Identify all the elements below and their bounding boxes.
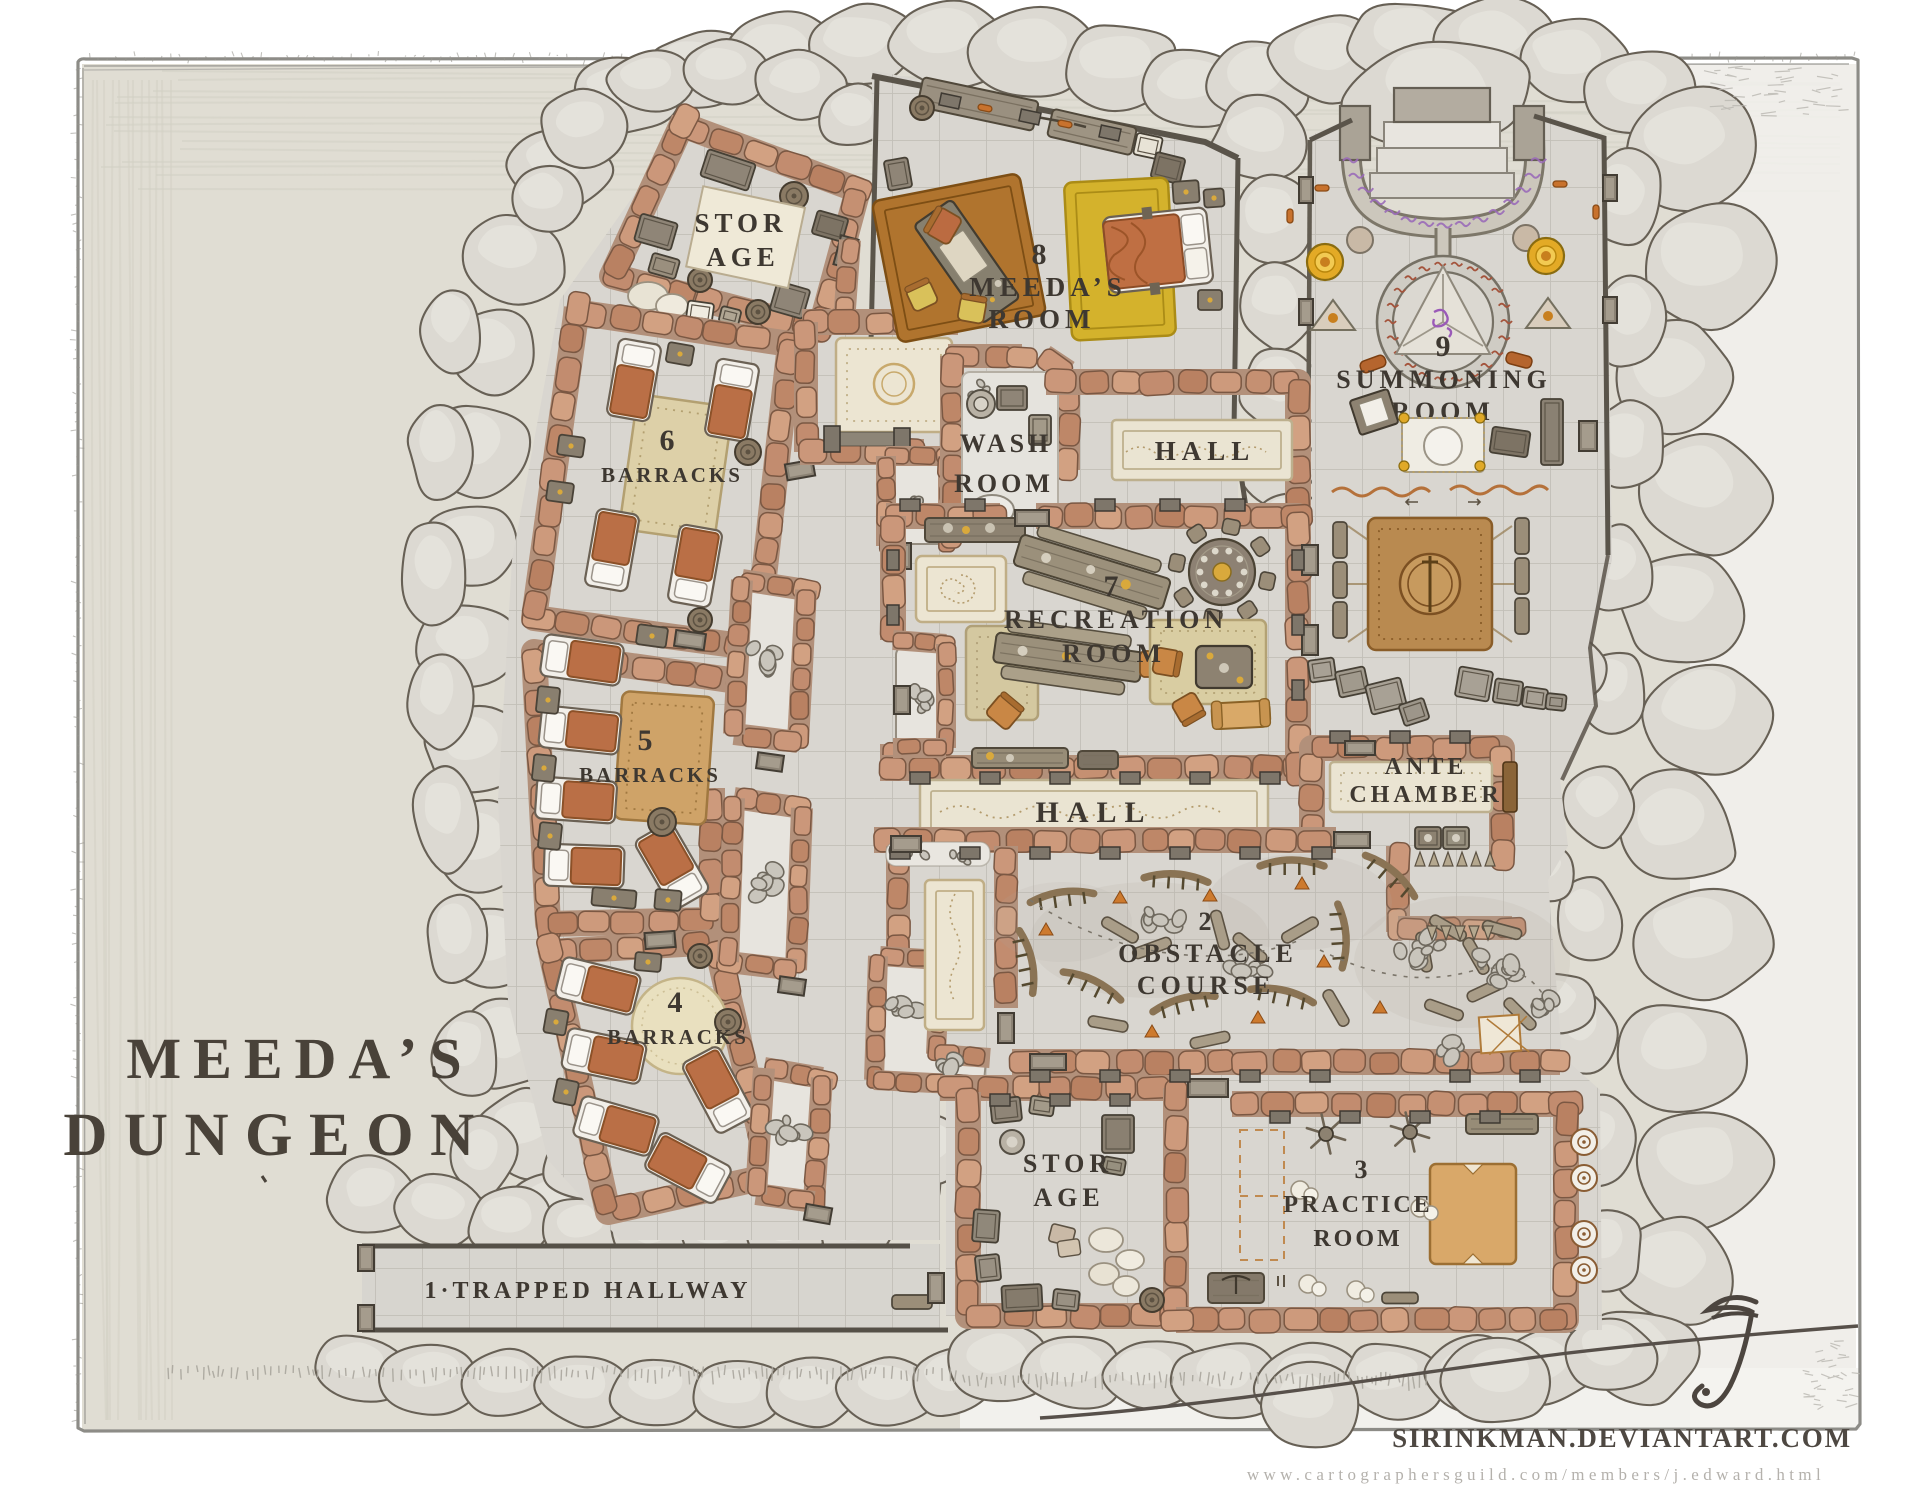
svg-text:HALL: HALL <box>1035 796 1152 829</box>
svg-text:2: 2 <box>1199 907 1214 936</box>
svg-text:CHAMBER: CHAMBER <box>1349 782 1502 808</box>
svg-text:COURSE: COURSE <box>1137 971 1275 1000</box>
svg-text:7: 7 <box>1104 570 1121 603</box>
svg-text:3: 3 <box>1355 1155 1370 1184</box>
svg-text:HALL: HALL <box>1155 436 1256 466</box>
svg-text:SIRINKMAN.DEVIANTART.COM: SIRINKMAN.DEVIANTART.COM <box>1392 1423 1852 1453</box>
svg-text:STOR: STOR <box>1023 1149 1113 1178</box>
svg-text:MEEDA’S: MEEDA’S <box>969 272 1127 302</box>
svg-text:SUMMONING: SUMMONING <box>1336 365 1551 394</box>
svg-text:STOR: STOR <box>694 208 787 238</box>
svg-text:AGE: AGE <box>1033 1183 1104 1212</box>
svg-text:PRACTICE: PRACTICE <box>1283 1192 1432 1218</box>
svg-text:8: 8 <box>1032 238 1049 271</box>
svg-text:BARRACKS: BARRACKS <box>601 463 743 487</box>
svg-text:BARRACKS: BARRACKS <box>579 763 721 787</box>
svg-text:BARRACKS: BARRACKS <box>607 1025 749 1049</box>
svg-text:www.cartographersguild.com/mem: www.cartographersguild.com/members/j.edw… <box>1247 1465 1825 1484</box>
svg-text:1·TRAPPED HALLWAY: 1·TRAPPED HALLWAY <box>425 1278 752 1304</box>
svg-text:9: 9 <box>1436 330 1453 363</box>
svg-text:MEEDA’S: MEEDA’S <box>126 1026 473 1091</box>
svg-text:DUNGEON: DUNGEON <box>63 1102 490 1169</box>
svg-text:ROOM: ROOM <box>1062 639 1166 668</box>
svg-text:4: 4 <box>668 986 685 1019</box>
svg-text:ROOM: ROOM <box>954 469 1054 498</box>
svg-text:OBSTACLE: OBSTACLE <box>1118 939 1298 968</box>
svg-text:RECREATION: RECREATION <box>1004 605 1228 634</box>
svg-text:5: 5 <box>638 724 655 757</box>
svg-text:ANTE: ANTE <box>1385 754 1468 780</box>
svg-text:ROOM: ROOM <box>989 304 1096 334</box>
svg-text:AGE: AGE <box>706 242 780 272</box>
svg-text:WASH: WASH <box>960 429 1053 458</box>
svg-text:6: 6 <box>660 424 677 457</box>
svg-text:ROOM: ROOM <box>1313 1226 1402 1252</box>
